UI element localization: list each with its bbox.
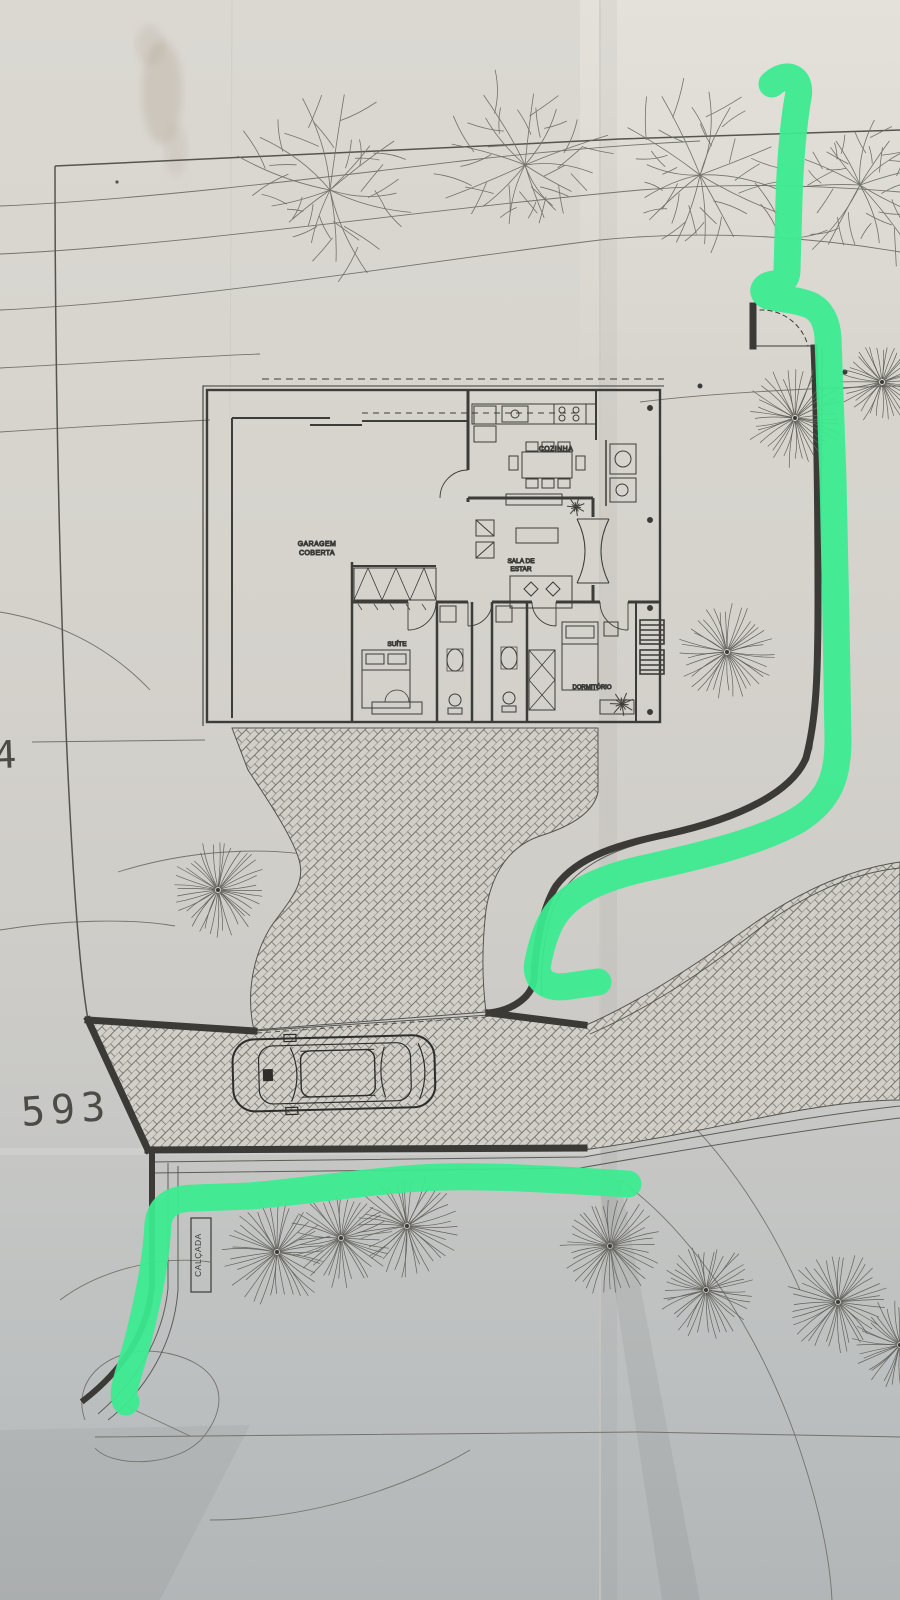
elevation-label-593: 593 [19,1084,112,1136]
garage-label-1: GARAGEM [298,541,337,548]
elevation-label-4: 4 [0,732,17,777]
site-plan-photo: GARAGEM COBERTA COZINHA [0,0,900,1600]
site-plan-drawing: GARAGEM COBERTA COZINHA [0,0,900,1600]
living-label-2: ESTAR [510,566,531,573]
garage-label-2: COBERTA [299,550,335,557]
suite-label: SUÍTE [387,639,407,648]
curb-label-text: CALÇADA [193,1233,203,1277]
living-label-1: SALA DE [507,558,535,565]
